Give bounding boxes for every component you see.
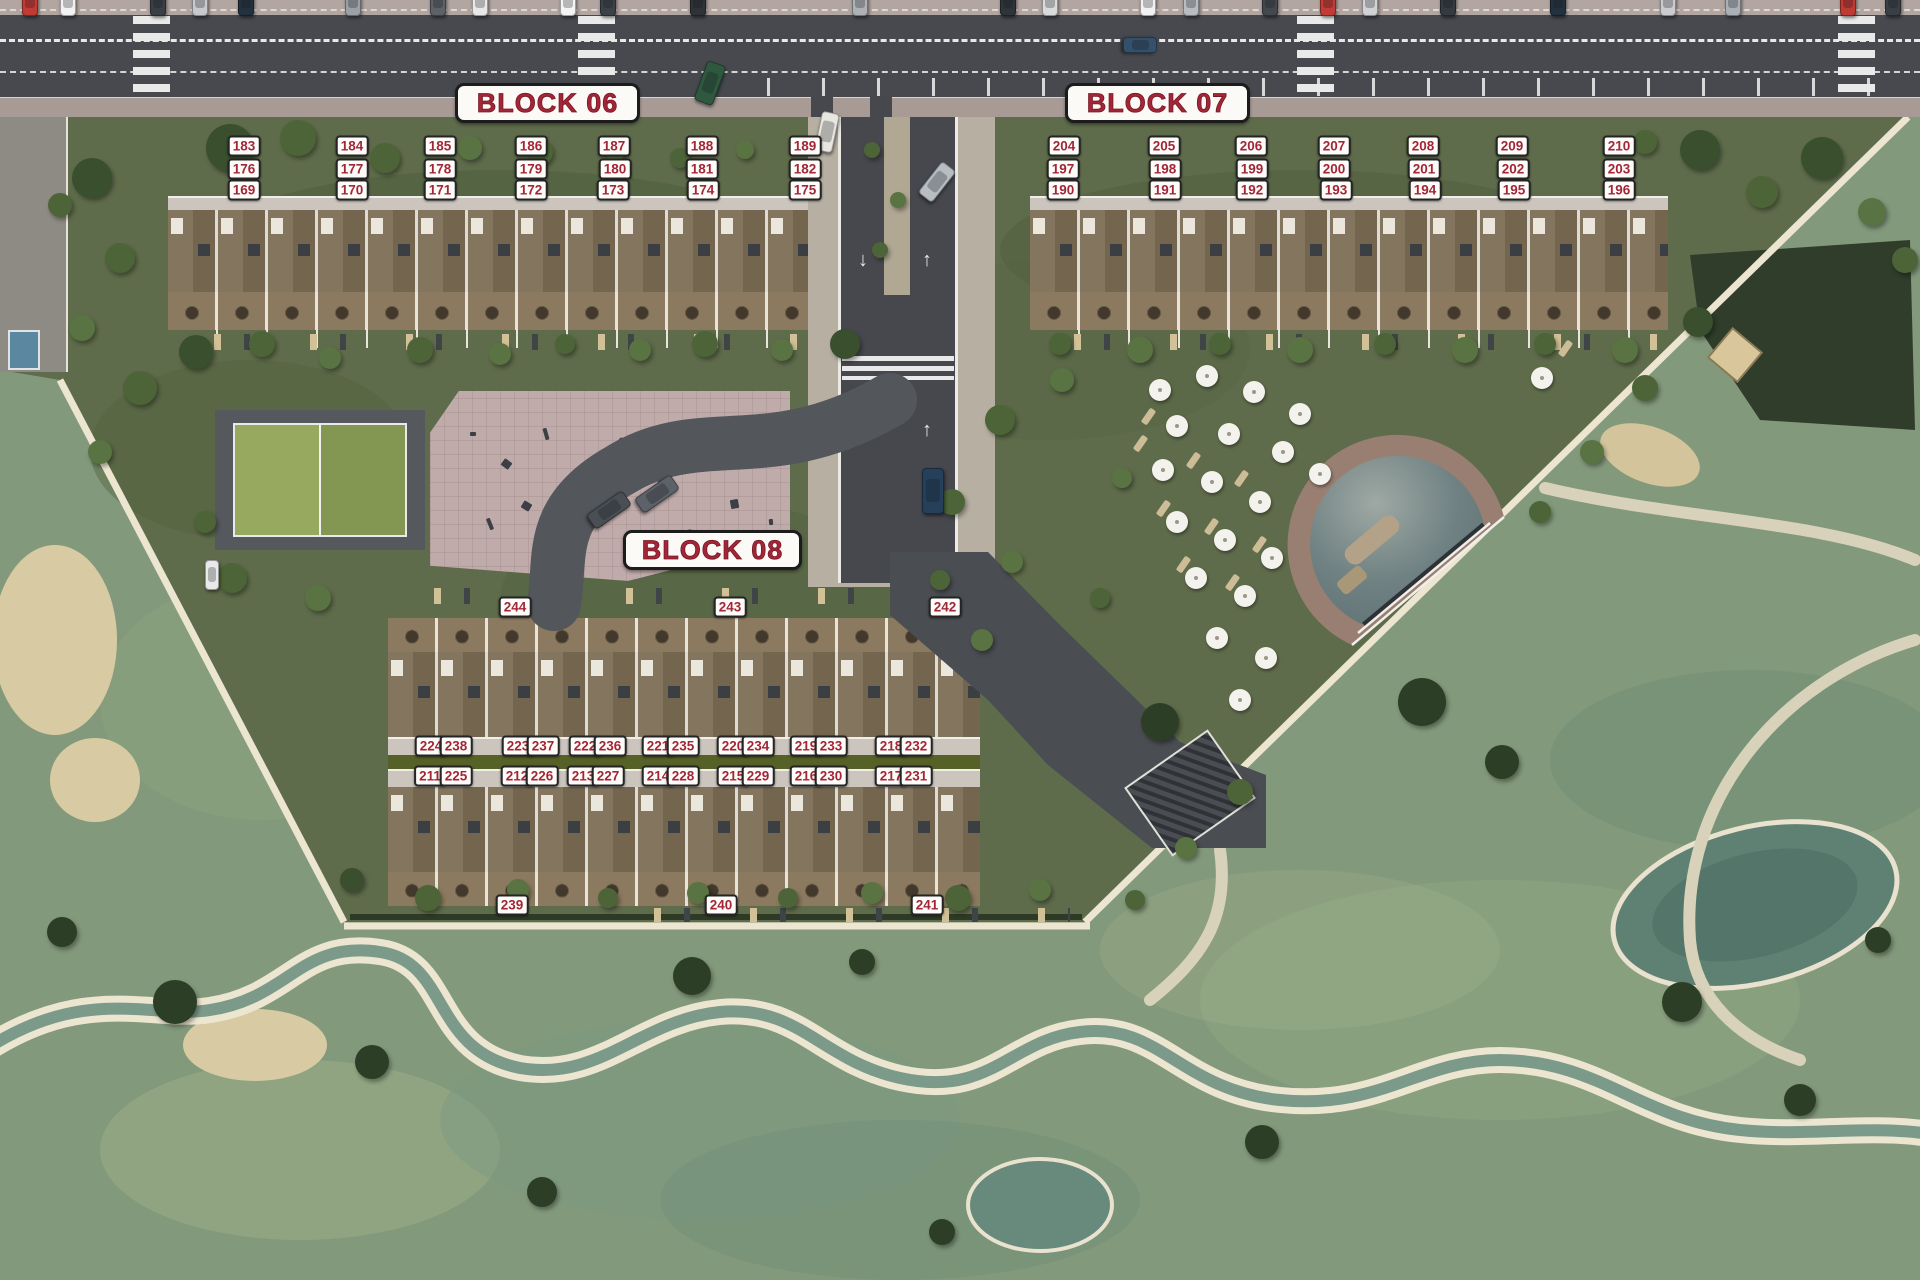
unit-badge-179[interactable]: 179 <box>515 159 548 180</box>
unit-badge-185[interactable]: 185 <box>424 136 457 157</box>
unit-badge-244[interactable]: 244 <box>499 597 532 618</box>
block06-label: BLOCK 06 <box>455 83 640 123</box>
unit-badge-189[interactable]: 189 <box>789 136 822 157</box>
unit-badge-190[interactable]: 190 <box>1047 180 1080 201</box>
unit-badge-236[interactable]: 236 <box>594 736 627 757</box>
unit-badge-206[interactable]: 206 <box>1235 136 1268 157</box>
unit-badge-210[interactable]: 210 <box>1603 136 1636 157</box>
unit-badge-239[interactable]: 239 <box>496 895 529 916</box>
unit-badge-205[interactable]: 205 <box>1148 136 1181 157</box>
unit-badges-layer: 1831841851861871881891761771781791801811… <box>0 0 1920 1280</box>
unit-badge-230[interactable]: 230 <box>815 766 848 787</box>
unit-badge-225[interactable]: 225 <box>440 766 473 787</box>
unit-badge-197[interactable]: 197 <box>1047 159 1080 180</box>
unit-badge-243[interactable]: 243 <box>714 597 747 618</box>
unit-badge-191[interactable]: 191 <box>1149 180 1182 201</box>
unit-badge-209[interactable]: 209 <box>1496 136 1529 157</box>
unit-badge-237[interactable]: 237 <box>527 736 560 757</box>
unit-badge-231[interactable]: 231 <box>900 766 933 787</box>
unit-badge-234[interactable]: 234 <box>742 736 775 757</box>
unit-badge-233[interactable]: 233 <box>815 736 848 757</box>
unit-badge-228[interactable]: 228 <box>667 766 700 787</box>
unit-badge-177[interactable]: 177 <box>336 159 369 180</box>
unit-badge-194[interactable]: 194 <box>1409 180 1442 201</box>
unit-badge-176[interactable]: 176 <box>228 159 261 180</box>
unit-badge-232[interactable]: 232 <box>900 736 933 757</box>
unit-badge-182[interactable]: 182 <box>789 159 822 180</box>
unit-badge-187[interactable]: 187 <box>598 136 631 157</box>
unit-badge-173[interactable]: 173 <box>597 180 630 201</box>
unit-badge-199[interactable]: 199 <box>1236 159 1269 180</box>
unit-badge-229[interactable]: 229 <box>742 766 775 787</box>
unit-badge-171[interactable]: 171 <box>424 180 457 201</box>
unit-badge-200[interactable]: 200 <box>1318 159 1351 180</box>
unit-badge-172[interactable]: 172 <box>515 180 548 201</box>
unit-badge-170[interactable]: 170 <box>336 180 369 201</box>
unit-badge-202[interactable]: 202 <box>1497 159 1530 180</box>
unit-badge-180[interactable]: 180 <box>599 159 632 180</box>
unit-badge-186[interactable]: 186 <box>515 136 548 157</box>
unit-badge-201[interactable]: 201 <box>1408 159 1441 180</box>
block07-label: BLOCK 07 <box>1065 83 1250 123</box>
unit-badge-198[interactable]: 198 <box>1149 159 1182 180</box>
unit-badge-178[interactable]: 178 <box>424 159 457 180</box>
unit-badge-169[interactable]: 169 <box>228 180 261 201</box>
unit-badge-193[interactable]: 193 <box>1320 180 1353 201</box>
site-plan-canvas: ↓ ↑ ↑ <box>0 0 1920 1280</box>
unit-badge-242[interactable]: 242 <box>929 597 962 618</box>
unit-badge-235[interactable]: 235 <box>667 736 700 757</box>
unit-badge-188[interactable]: 188 <box>686 136 719 157</box>
unit-badge-238[interactable]: 238 <box>440 736 473 757</box>
unit-badge-181[interactable]: 181 <box>686 159 719 180</box>
unit-badge-208[interactable]: 208 <box>1407 136 1440 157</box>
unit-badge-184[interactable]: 184 <box>336 136 369 157</box>
unit-badge-203[interactable]: 203 <box>1603 159 1636 180</box>
unit-badge-207[interactable]: 207 <box>1318 136 1351 157</box>
unit-badge-226[interactable]: 226 <box>526 766 559 787</box>
unit-badge-240[interactable]: 240 <box>705 895 738 916</box>
unit-badge-175[interactable]: 175 <box>789 180 822 201</box>
unit-badge-204[interactable]: 204 <box>1048 136 1081 157</box>
unit-badge-196[interactable]: 196 <box>1603 180 1636 201</box>
unit-badge-192[interactable]: 192 <box>1236 180 1269 201</box>
block08-label: BLOCK 08 <box>623 530 802 570</box>
unit-badge-183[interactable]: 183 <box>228 136 261 157</box>
unit-badge-227[interactable]: 227 <box>592 766 625 787</box>
unit-badge-174[interactable]: 174 <box>687 180 720 201</box>
unit-badge-241[interactable]: 241 <box>911 895 944 916</box>
unit-badge-195[interactable]: 195 <box>1498 180 1531 201</box>
